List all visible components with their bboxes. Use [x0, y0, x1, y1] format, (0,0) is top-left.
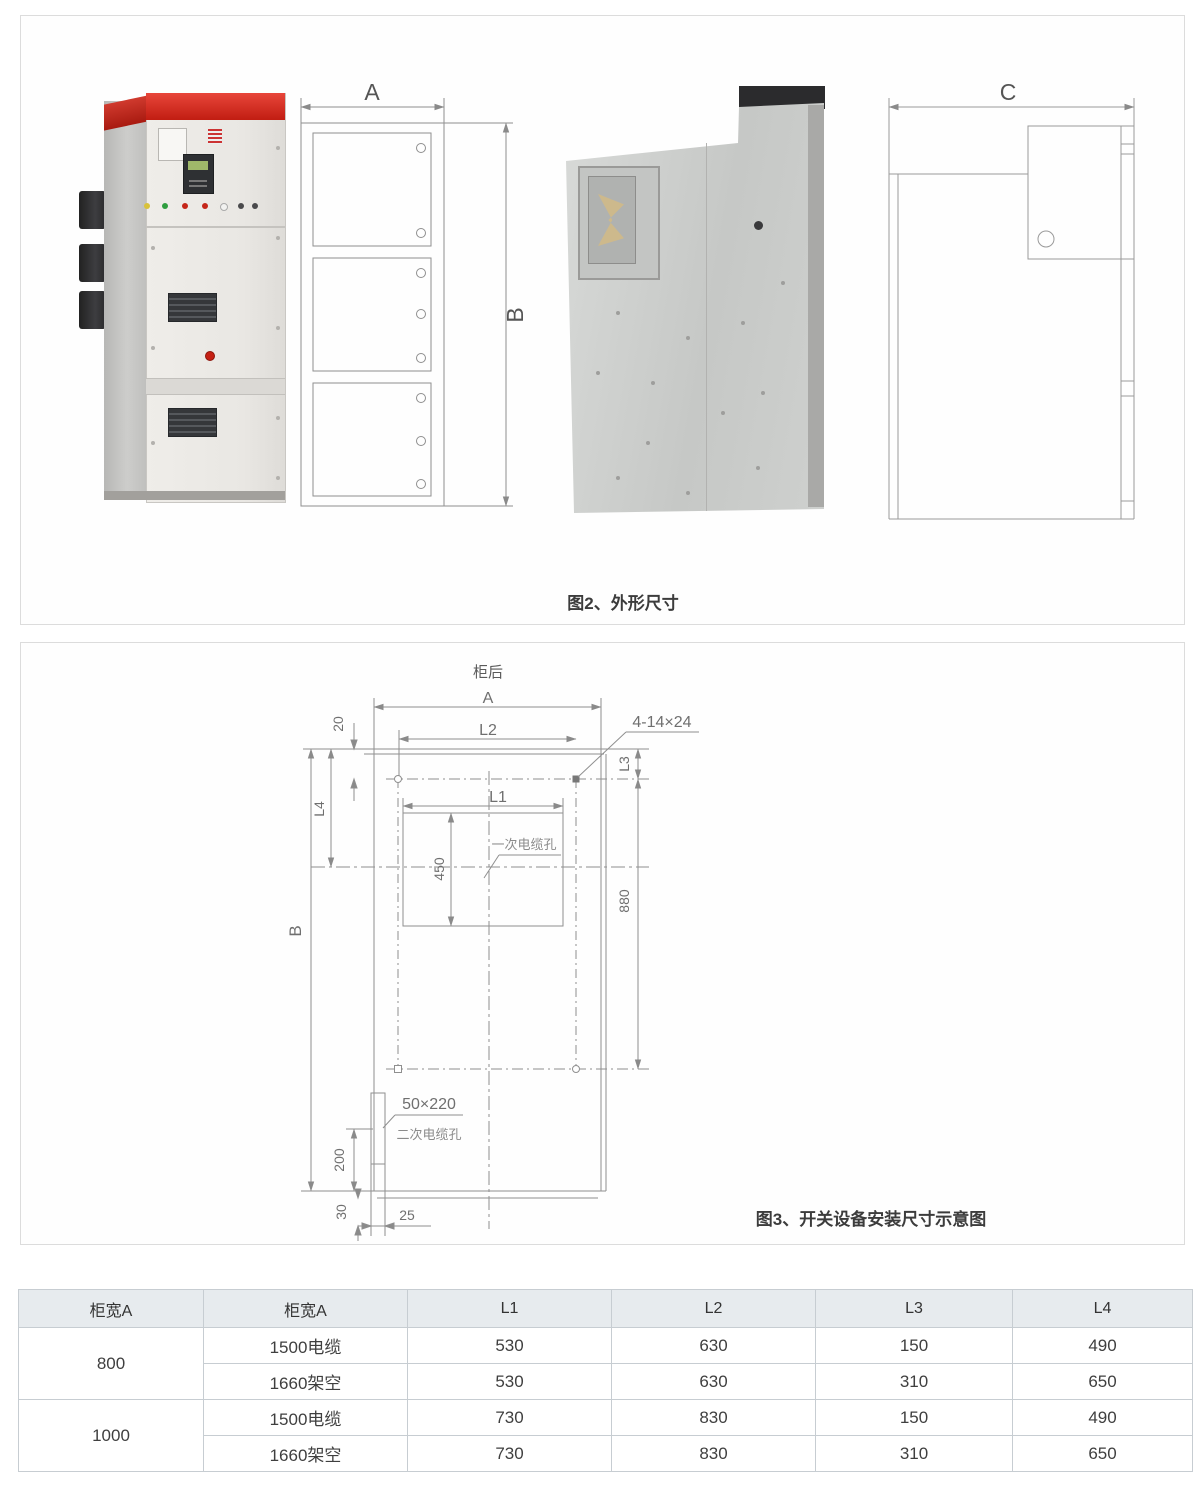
cabinet-red-button [205, 351, 215, 361]
side-view-drawing: C [861, 71, 1151, 536]
fig3-bolt-holes: 4-14×24 [632, 714, 691, 731]
fig3-secondary-cable-hole: 二次电缆孔 [396, 1127, 461, 1142]
fig3-dim-25: 25 [399, 1207, 415, 1223]
fig3-dim-l2: L2 [479, 722, 497, 739]
fig2-dim-a-label: A [364, 79, 380, 105]
front-view-drawing: A B [291, 71, 536, 526]
cell-type: 1660架空 [204, 1364, 408, 1400]
fig2-dim-b-label: B [502, 307, 528, 322]
table-row: 1000 1500电缆 730 830 150 490 [19, 1400, 1193, 1436]
cell-l4: 490 [1013, 1328, 1193, 1364]
fig3-rear-label: 柜后 [473, 664, 503, 681]
fig3-primary-cable-hole: 一次电缆孔 [491, 837, 556, 852]
fig3-dim-l1: L1 [489, 789, 507, 806]
installation-diagram: 柜后 A L2 20 4-14×24 L3 L4 L1 450 一次电缆孔 88… [284, 651, 714, 1247]
cell-l3: 150 [816, 1400, 1013, 1436]
header-l2: L2 [612, 1290, 816, 1328]
cabinet-side-face [104, 101, 146, 491]
cell-l2: 630 [612, 1364, 816, 1400]
side-plate-edge [808, 105, 824, 507]
cabinet-divider-strip [146, 378, 285, 395]
fig3-secondary-hole-size: 50×220 [402, 1096, 456, 1113]
cell-l1: 530 [408, 1364, 612, 1400]
side-plate-body [556, 81, 836, 526]
cabinet-red-band [146, 93, 285, 120]
cabinet-base-shadow [104, 491, 285, 500]
side-plate-window [578, 166, 660, 280]
cell-l3: 150 [816, 1328, 1013, 1364]
cabinet-indicator-lights [144, 203, 254, 211]
cell-l2: 630 [612, 1328, 816, 1364]
figure2-caption: 图2、外形尺寸 [567, 589, 678, 614]
fig3-dim-450: 450 [431, 857, 447, 881]
fig3-dim-20: 20 [330, 716, 346, 732]
fig3-dim-30: 30 [333, 1204, 349, 1220]
cell-width-1000: 1000 [19, 1400, 204, 1472]
cell-l3: 310 [816, 1364, 1013, 1400]
cell-l1: 530 [408, 1328, 612, 1364]
fig3-dim-880: 880 [616, 889, 632, 913]
fig3-dim-b: B [286, 925, 305, 936]
figure2-panel: A B [20, 15, 1185, 625]
cell-l3: 310 [816, 1436, 1013, 1472]
cabinet-indicator-sticker [208, 129, 222, 144]
fig3-dim-200: 200 [331, 1148, 347, 1172]
figure3-panel: 柜后 A L2 20 4-14×24 L3 L4 L1 450 一次电缆孔 88… [20, 642, 1185, 1245]
header-cabinet-width-1: 柜宽A [19, 1290, 204, 1328]
cabinet-vent-middle [168, 293, 217, 322]
header-l4: L4 [1013, 1290, 1193, 1328]
cabinet-knob [79, 291, 106, 329]
header-l1: L1 [408, 1290, 612, 1328]
cabinet-knob [79, 191, 106, 229]
figure3-caption: 图3、开关设备安装尺寸示意图 [756, 1205, 986, 1230]
fig3-dim-l4: L4 [311, 801, 327, 817]
side-plate-photo [556, 81, 836, 531]
header-cabinet-width-2: 柜宽A [204, 1290, 408, 1328]
side-plate-hole [754, 221, 763, 230]
fig3-dim-l3: L3 [616, 756, 632, 772]
cell-l4: 490 [1013, 1400, 1193, 1436]
cell-width-800: 800 [19, 1328, 204, 1400]
table-row: 800 1500电缆 530 630 150 490 [19, 1328, 1193, 1364]
cell-l4: 650 [1013, 1436, 1193, 1472]
fig3-dim-a: A [483, 690, 494, 707]
cell-type: 1500电缆 [204, 1400, 408, 1436]
cell-type: 1500电缆 [204, 1328, 408, 1364]
fig2-dim-c-label: C [1000, 79, 1017, 105]
dimension-table: 柜宽A 柜宽A L1 L2 L3 L4 800 1500电缆 530 630 1… [18, 1289, 1193, 1472]
table-header-row: 柜宽A 柜宽A L1 L2 L3 L4 [19, 1290, 1193, 1328]
cell-l1: 730 [408, 1400, 612, 1436]
header-l3: L3 [816, 1290, 1013, 1328]
manual-page: A B [0, 0, 1200, 1500]
cell-type: 1660架空 [204, 1436, 408, 1472]
cabinet-relay-display [183, 154, 214, 194]
cell-l4: 650 [1013, 1364, 1193, 1400]
cabinet-knob [79, 244, 106, 282]
cabinet-photo [79, 86, 289, 506]
cell-l1: 730 [408, 1436, 612, 1472]
cell-l2: 830 [612, 1436, 816, 1472]
cell-l2: 830 [612, 1400, 816, 1436]
cabinet-vent-bottom [168, 408, 217, 437]
